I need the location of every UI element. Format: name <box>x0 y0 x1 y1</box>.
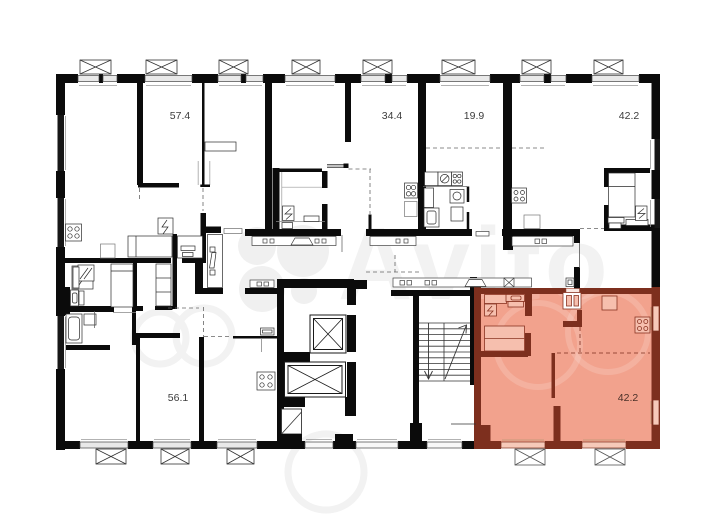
svg-text:57.4: 57.4 <box>170 110 191 122</box>
svg-text:19.9: 19.9 <box>464 110 485 122</box>
svg-text:56.1: 56.1 <box>168 392 189 404</box>
svg-text:42.2: 42.2 <box>619 110 640 122</box>
svg-text:34.4: 34.4 <box>382 110 403 122</box>
svg-text:42.2: 42.2 <box>618 392 639 404</box>
